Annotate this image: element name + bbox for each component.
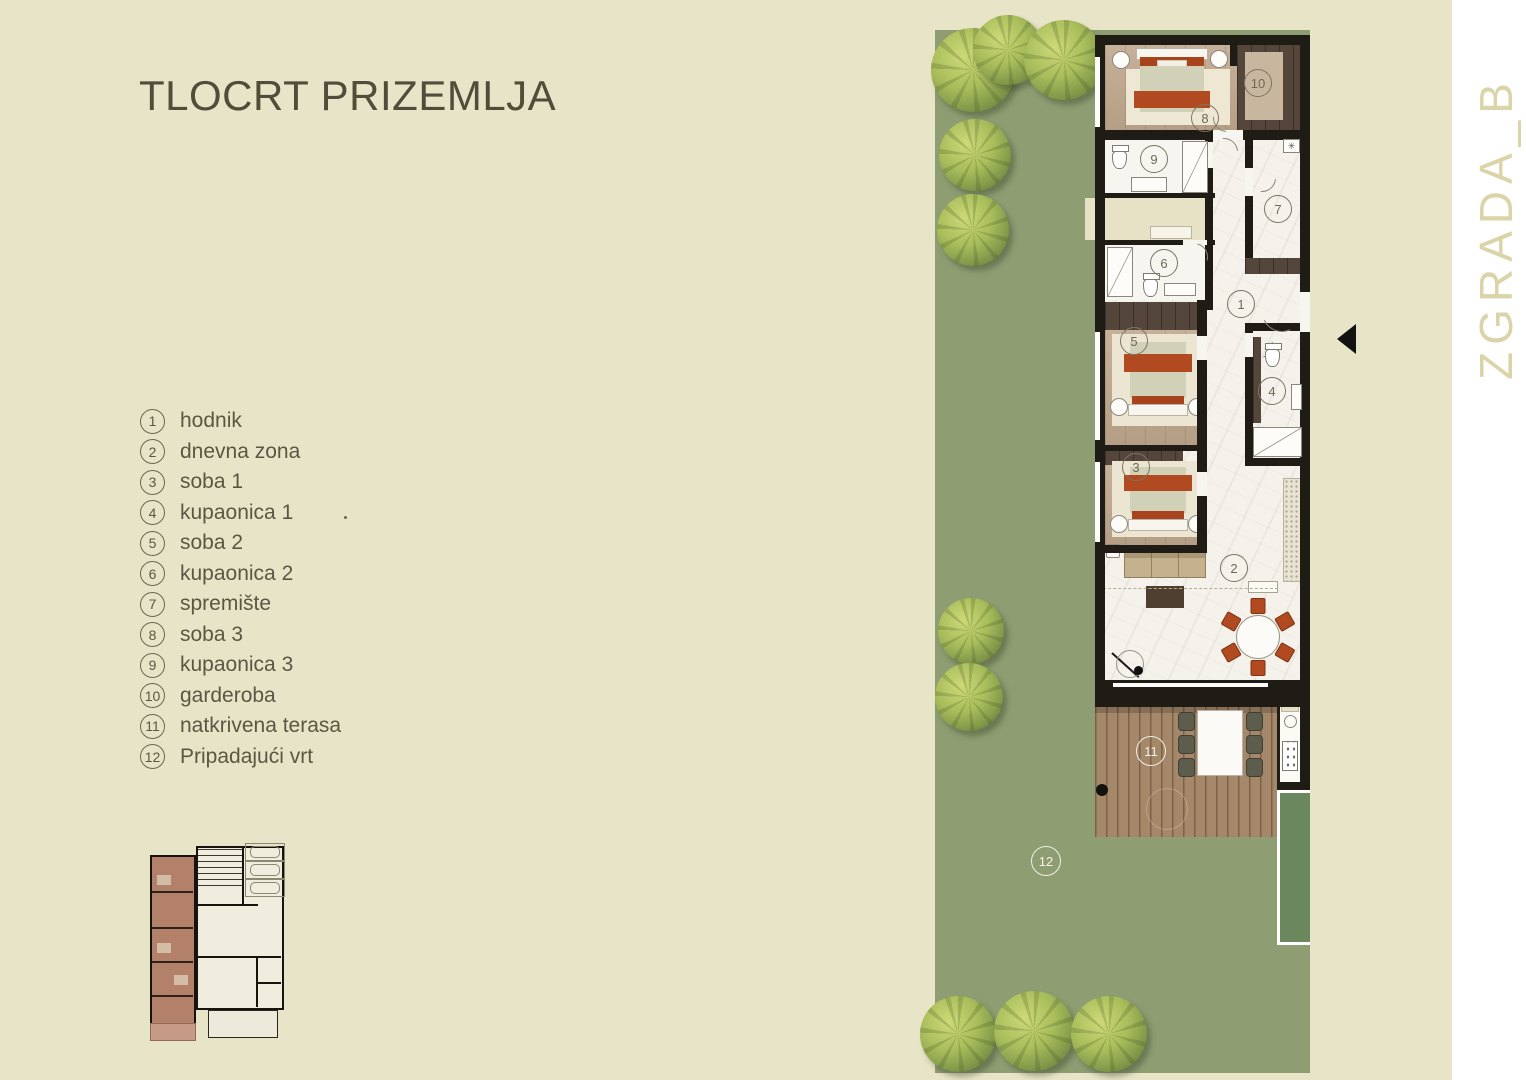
floor-lamp-base	[1134, 666, 1143, 675]
legend-label: garderoba	[180, 684, 276, 708]
legend-label: kupaonica 2	[180, 562, 293, 586]
key-plan-highlighted-terrace	[150, 1023, 196, 1041]
legend-number-badge: 4	[140, 500, 165, 525]
shower-kupaonica3-icon	[1182, 141, 1208, 193]
legend-item-10: 10garderoba	[140, 681, 341, 712]
legend-item-12: 12Pripadajući vrt	[140, 742, 341, 773]
window-soba1	[1095, 462, 1100, 542]
legend-number-badge: 3	[140, 470, 165, 495]
legend-label: kupaonica 3	[180, 653, 293, 677]
stray-dot	[344, 516, 347, 519]
car-icon	[250, 846, 280, 858]
page: { "title": "TLOCRT PRIZEMLJA", "side_lab…	[0, 0, 1526, 1080]
sink-kupaonica1-icon	[1291, 384, 1302, 410]
legend-item-4: 4kupaonica 1	[140, 498, 341, 529]
terrace-chair-icon	[1246, 712, 1263, 731]
dining-chair-icon	[1251, 660, 1266, 676]
room-marker-6: 6	[1150, 249, 1178, 277]
key-plan-stairs	[198, 848, 242, 886]
legend-number-badge: 12	[140, 744, 165, 769]
room-marker-1: 1	[1227, 290, 1255, 318]
toilet-kupaonica1-icon	[1265, 348, 1280, 367]
bush-icon	[994, 991, 1074, 1071]
room-marker-2: 2	[1220, 554, 1248, 582]
zone-dashed-line	[1098, 588, 1278, 589]
terrace-column	[1096, 784, 1108, 796]
entry-arrow-icon	[1337, 324, 1356, 354]
terrace-ornament-icon	[1146, 788, 1188, 830]
legend-label: soba 3	[180, 623, 243, 647]
coffee-table	[1146, 586, 1184, 608]
building-side-label: ZGRADA_B	[1469, 40, 1515, 380]
bush-icon	[935, 663, 1003, 731]
key-plan-highlighted-unit	[150, 855, 196, 1025]
legend-label: hodnik	[180, 409, 242, 433]
legend-item-8: 8soba 3	[140, 620, 341, 651]
legend-item-5: 5soba 2	[140, 528, 341, 559]
window-soba2	[1095, 332, 1100, 440]
room-marker-10: 10	[1244, 69, 1272, 97]
legend-label: spremište	[180, 592, 271, 616]
terrace-chair-icon	[1178, 712, 1195, 731]
legend-number-badge: 6	[140, 561, 165, 586]
dining-chair-icon	[1251, 598, 1266, 614]
legend-label: dnevna zona	[180, 440, 300, 464]
legend-number-badge: 11	[140, 714, 165, 739]
bush-icon	[1071, 996, 1147, 1072]
room-marker-3: 3	[1122, 453, 1150, 481]
room-marker-9: 9	[1140, 145, 1168, 173]
room-marker-5: 5	[1120, 327, 1148, 355]
key-plan-parking	[245, 843, 285, 897]
shower-kupaonica2-icon	[1107, 247, 1133, 297]
room-marker-8: 8	[1191, 104, 1219, 132]
legend-number-badge: 2	[140, 439, 165, 464]
legend-item-7: 7spremište	[140, 589, 341, 620]
bush-icon	[939, 119, 1011, 191]
kitchen-island	[1248, 581, 1278, 593]
legend-item-6: 6kupaonica 2	[140, 559, 341, 590]
terrace-chair-icon	[1178, 758, 1195, 777]
bush-icon	[938, 598, 1004, 664]
bush-icon	[920, 996, 996, 1072]
legend-list: 1hodnik2dnevna zona3soba 14kupaonica 15s…	[140, 406, 341, 772]
hall-closet-band	[1245, 258, 1302, 274]
bush-icon	[937, 194, 1009, 266]
pool	[1277, 790, 1310, 945]
room-marker-4: 4	[1258, 377, 1286, 405]
terrace-chair-icon	[1246, 758, 1263, 777]
terrace-chair-icon	[1246, 735, 1263, 754]
room-marker-7: 7	[1264, 195, 1292, 223]
legend-item-1: 1hodnik	[140, 406, 341, 437]
terrace-chair-icon	[1178, 735, 1195, 754]
legend-number-badge: 7	[140, 592, 165, 617]
car-icon	[250, 864, 280, 876]
room-marker-12: 12	[1031, 846, 1061, 876]
vanity-kupaonica3-icon	[1131, 177, 1167, 192]
toilet-kupaonica3-icon	[1112, 150, 1127, 169]
room-marker-11: 11	[1136, 736, 1166, 766]
legend-item-11: 11natkrivena terasa	[140, 711, 341, 742]
sliding-glass-door	[1113, 683, 1268, 687]
bush-icon	[1024, 20, 1104, 100]
window-soba3	[1095, 57, 1100, 127]
legend-number-badge: 8	[140, 622, 165, 647]
legend-label: Pripadajući vrt	[180, 745, 313, 769]
legend-label: natkrivena terasa	[180, 714, 341, 738]
legend-number-badge: 9	[140, 653, 165, 678]
vanity-kupaonica2-icon	[1164, 283, 1196, 296]
car-icon	[250, 882, 280, 894]
page-title: TLOCRT PRIZEMLJA	[139, 72, 556, 120]
grill-icon	[1282, 741, 1298, 771]
legend-label: soba 1	[180, 470, 243, 494]
legend-item-3: 3soba 1	[140, 467, 341, 498]
legend-item-9: 9kupaonica 3	[140, 650, 341, 681]
wardrobe-band-soba2	[1105, 302, 1207, 330]
outdoor-sink-icon	[1284, 715, 1297, 728]
legend-number-badge: 10	[140, 683, 165, 708]
bathtub-kupaonica1-icon	[1253, 427, 1302, 457]
toilet-kupaonica2-icon	[1143, 278, 1158, 297]
washing-machine-icon: ✳	[1283, 139, 1300, 153]
legend-label: kupaonica 1	[180, 501, 293, 525]
terrace-table	[1197, 710, 1243, 776]
wall-top	[1095, 35, 1310, 45]
key-plan-right-terrace	[208, 1010, 278, 1038]
legend-number-badge: 5	[140, 531, 165, 556]
entry-step	[1150, 226, 1192, 239]
legend-label: soba 2	[180, 531, 243, 555]
dining-table	[1236, 615, 1280, 659]
legend-number-badge: 1	[140, 409, 165, 434]
legend-item-2: 2dnevna zona	[140, 437, 341, 468]
